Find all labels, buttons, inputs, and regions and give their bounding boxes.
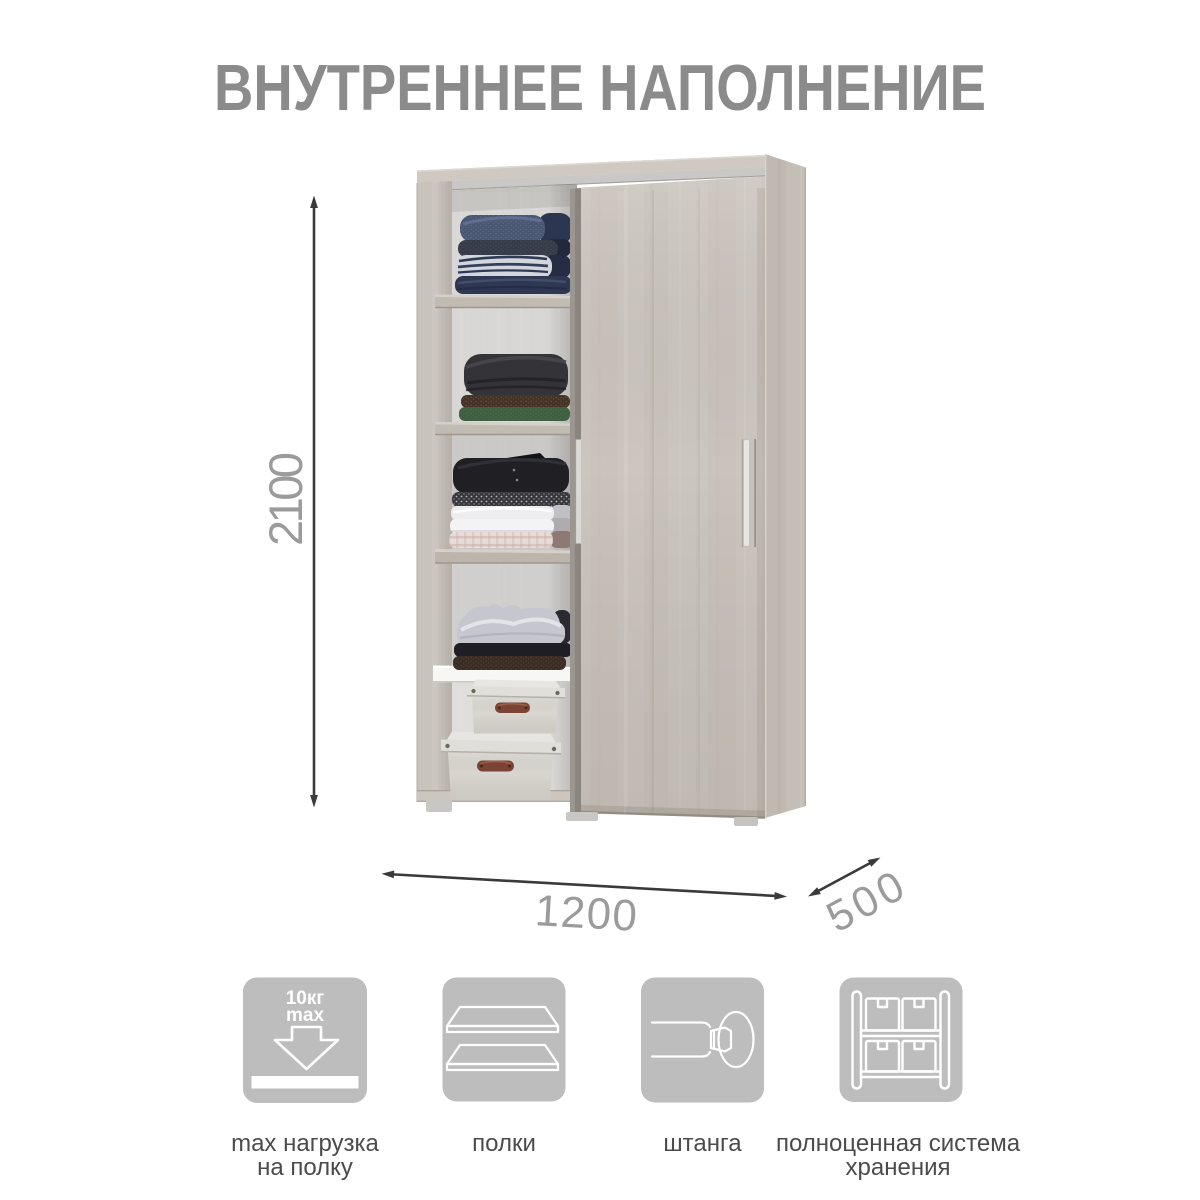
svg-text:хранения: хранения (846, 1154, 951, 1181)
svg-text:max: max (286, 1005, 324, 1026)
svg-text:max нагрузка: max нагрузка (231, 1130, 379, 1157)
svg-text:полноценная система: полноценная система (776, 1130, 1021, 1157)
svg-text:ВНУТРЕННЕЕ НАПОЛНЕНИЕ: ВНУТРЕННЕЕ НАПОЛНЕНИЕ (214, 51, 986, 124)
svg-text:штанга: штанга (663, 1130, 742, 1157)
svg-text:1200: 1200 (534, 886, 639, 941)
svg-text:полки: полки (472, 1130, 536, 1157)
svg-text:на полку: на полку (257, 1154, 353, 1181)
svg-text:2100: 2100 (259, 452, 312, 546)
svg-text:500: 500 (819, 862, 912, 942)
